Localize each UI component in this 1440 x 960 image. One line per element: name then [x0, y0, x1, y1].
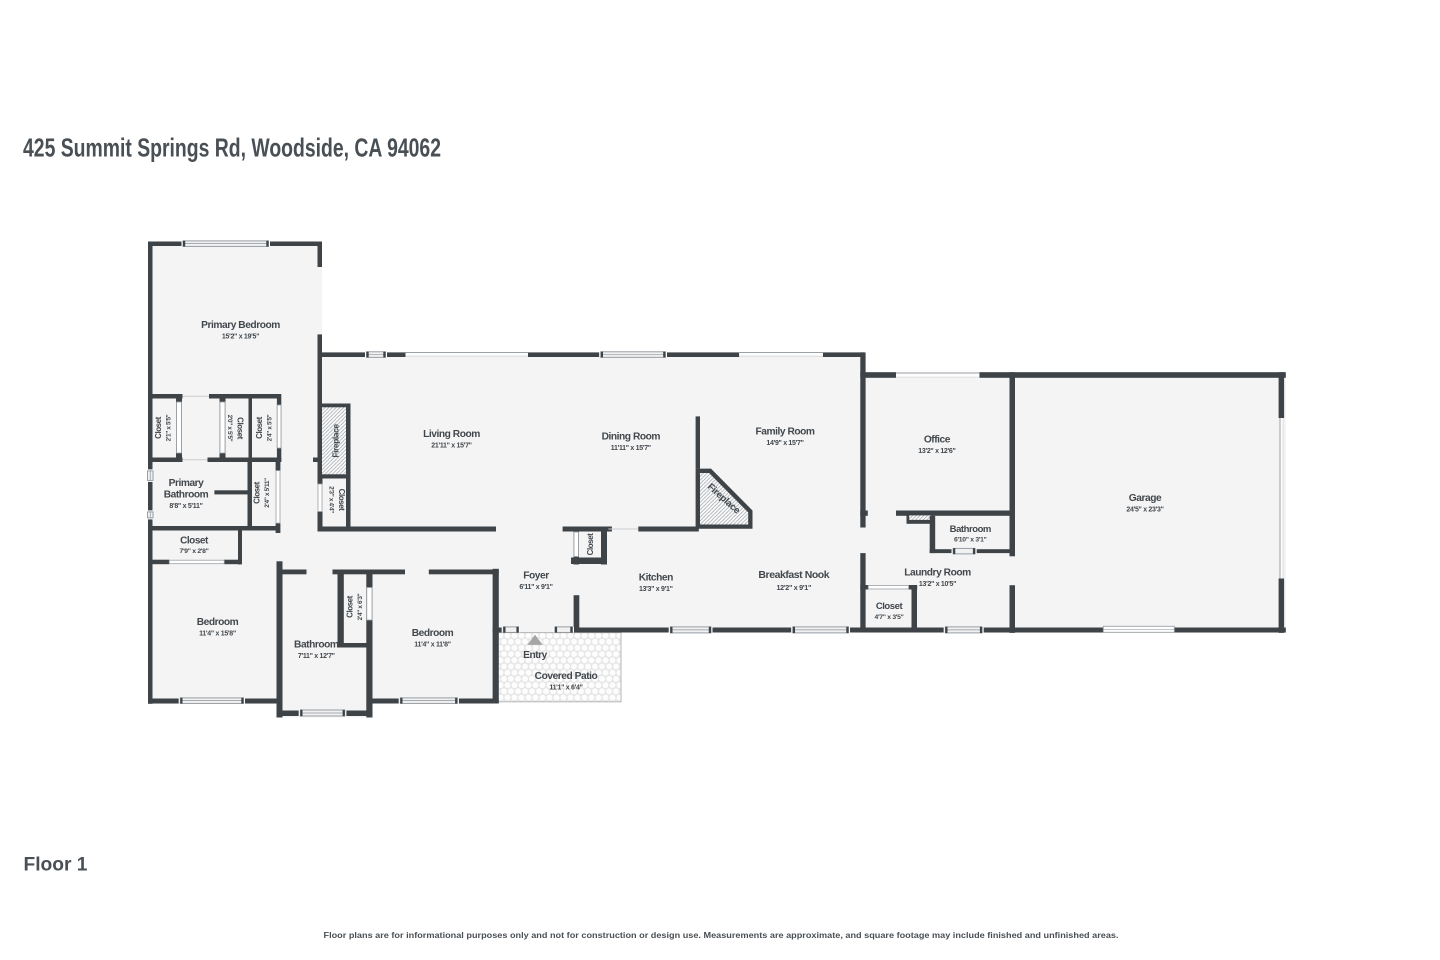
svg-text:Bathroom: Bathroom — [950, 524, 991, 535]
svg-text:2'4" x 5'5": 2'4" x 5'5" — [267, 414, 274, 441]
svg-text:Living Room: Living Room — [423, 429, 480, 440]
svg-text:Closet: Closet — [876, 601, 904, 612]
svg-text:Family Room: Family Room — [755, 427, 814, 438]
svg-text:2'0" x 5'5": 2'0" x 5'5" — [226, 415, 233, 442]
svg-text:Bedroom: Bedroom — [412, 628, 454, 639]
svg-text:Primary: Primary — [169, 478, 205, 489]
svg-text:13'3" x 9'1": 13'3" x 9'1" — [639, 586, 673, 593]
svg-text:13'2" x 10'5": 13'2" x 10'5" — [919, 581, 956, 588]
svg-text:11'11" x 15'7": 11'11" x 15'7" — [611, 445, 651, 452]
svg-text:14'9" x 15'7": 14'9" x 15'7" — [766, 440, 803, 447]
svg-text:Closet: Closet — [255, 416, 264, 439]
svg-text:Bedroom: Bedroom — [197, 617, 239, 628]
svg-text:Bathroom: Bathroom — [294, 640, 339, 651]
svg-text:11'4" x 15'8": 11'4" x 15'8" — [199, 630, 236, 637]
svg-text:Bathroom: Bathroom — [164, 489, 209, 500]
svg-text:Primary Bedroom: Primary Bedroom — [201, 320, 280, 331]
svg-text:12'2" x 9'1": 12'2" x 9'1" — [776, 583, 811, 592]
svg-text:Closet: Closet — [236, 417, 245, 440]
svg-text:2'1" x 5'5": 2'1" x 5'5" — [166, 414, 173, 441]
svg-text:7'9" x 2'8": 7'9" x 2'8" — [179, 548, 208, 555]
svg-text:Closet: Closet — [345, 595, 354, 618]
svg-text:Closet: Closet — [154, 416, 163, 439]
svg-text:Garage: Garage — [1129, 493, 1162, 504]
svg-text:Floor plans are for informatio: Floor plans are for informational purpos… — [324, 931, 1119, 940]
svg-text:Closet: Closet — [337, 489, 346, 512]
svg-text:Closet: Closet — [180, 536, 209, 547]
svg-text:Breakfast Nook: Breakfast Nook — [758, 569, 829, 581]
svg-text:7'11" x 12'7": 7'11" x 12'7" — [298, 653, 335, 660]
svg-text:2'4" x 6'3": 2'4" x 6'3" — [357, 593, 364, 620]
svg-text:Fireplace: Fireplace — [331, 424, 341, 458]
svg-text:Office: Office — [924, 435, 951, 446]
svg-text:Kitchen: Kitchen — [639, 573, 673, 584]
svg-text:21'11" x 15'7": 21'11" x 15'7" — [431, 442, 471, 449]
svg-text:24'5" x 23'3": 24'5" x 23'3" — [1126, 506, 1163, 513]
svg-text:15'2" x 19'5": 15'2" x 19'5" — [222, 333, 259, 340]
svg-text:425 Summit Springs Rd, Woodsid: 425 Summit Springs Rd, Woodside, CA 9406… — [23, 133, 441, 163]
svg-text:Laundry Room: Laundry Room — [904, 568, 971, 579]
svg-text:8'8" x 5'11": 8'8" x 5'11" — [169, 503, 202, 510]
svg-text:Floor 1: Floor 1 — [24, 854, 88, 876]
svg-text:2'3" x 4'4": 2'3" x 4'4" — [328, 486, 335, 513]
svg-text:6'10" x 3'1": 6'10" x 3'1" — [954, 537, 987, 544]
svg-text:Foyer: Foyer — [523, 571, 549, 582]
svg-text:13'2" x 12'6": 13'2" x 12'6" — [918, 448, 955, 455]
svg-text:11'4" x 11'8": 11'4" x 11'8" — [414, 641, 450, 648]
svg-text:Covered Patio: Covered Patio — [535, 671, 598, 682]
svg-text:Closet: Closet — [253, 481, 262, 504]
svg-text:11'1" x 6'4": 11'1" x 6'4" — [549, 684, 582, 691]
svg-text:Entry: Entry — [523, 650, 548, 661]
svg-text:6'11" x 9'1": 6'11" x 9'1" — [519, 584, 552, 591]
svg-text:Dining Room: Dining Room — [602, 432, 661, 443]
svg-text:Closet: Closet — [586, 533, 595, 556]
svg-text:2'4" x 5'11": 2'4" x 5'11" — [264, 478, 271, 508]
svg-text:4'7" x 3'5": 4'7" x 3'5" — [874, 614, 903, 621]
